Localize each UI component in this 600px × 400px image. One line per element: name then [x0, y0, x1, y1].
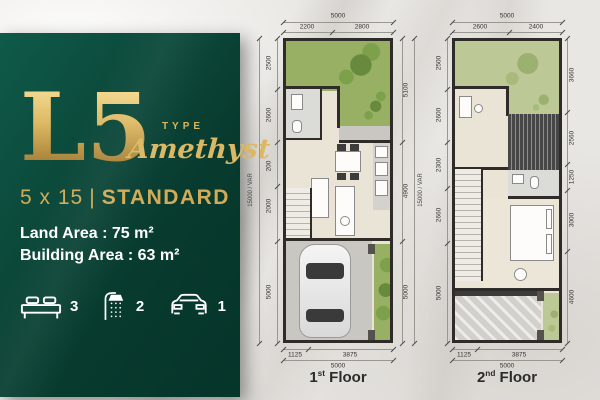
dim-tick [565, 341, 571, 347]
dim-label: 2400 [529, 24, 543, 31]
post [368, 244, 375, 254]
pillow [546, 234, 552, 254]
car [299, 244, 351, 338]
desk [459, 96, 472, 118]
land-area: Land Area : 75 m² [20, 225, 154, 243]
garden-below [455, 41, 559, 91]
dim-line [259, 38, 260, 343]
dim-line [414, 38, 415, 343]
dim-tick [560, 20, 566, 26]
dim-label: 1250 [569, 170, 576, 184]
dim-label: 5000 [266, 285, 273, 299]
grade-value: STANDARD [102, 186, 230, 209]
size-grade-line: 5 x 15|STANDARD [20, 186, 230, 210]
dim-label: 1125 [457, 352, 471, 359]
garden-strip2 [543, 293, 559, 340]
car-icon [168, 293, 210, 319]
dim-line [283, 32, 393, 33]
dim-line [452, 360, 562, 361]
roof-deck [508, 114, 559, 172]
floor1-plan [283, 38, 393, 343]
dim-tick [257, 341, 263, 347]
dim-label: 2500 [436, 56, 443, 70]
fridge [375, 180, 388, 196]
garden-strip [374, 244, 390, 340]
stairs2 [455, 169, 481, 281]
kitchen-sink [375, 146, 388, 158]
post [537, 291, 544, 301]
floor1-label: 1st Floor [283, 369, 393, 386]
dim-label: 2000 [266, 199, 273, 213]
type-label: TYPE [128, 121, 238, 132]
building-area: Building Area : 63 m² [20, 247, 179, 265]
outer-wall [283, 38, 286, 343]
outer-wall [559, 38, 562, 343]
sink-basin [340, 216, 350, 226]
dim-tick [412, 341, 418, 347]
dim-label: 5000 [331, 13, 345, 20]
dining-chair [350, 173, 359, 180]
dim-label: 3875 [512, 352, 526, 359]
shower-tray [291, 94, 303, 110]
bedroom-count: 3 [70, 298, 78, 315]
dim-label: 15000 / VAR [418, 173, 424, 207]
dim-label: 2600 [436, 108, 443, 122]
size-value: 5 x 15 [20, 186, 83, 209]
info-panel: L5 TYPE Amethyst 5 x 15|STANDARD Land Ar… [0, 33, 240, 397]
dim-label: 2660 [436, 208, 443, 222]
dim-label: 5000 [500, 13, 514, 20]
roof-beam [455, 291, 541, 296]
dim-tick [391, 347, 397, 353]
garden-below-side [508, 88, 559, 114]
dim-label: 2600 [266, 108, 273, 122]
wall [506, 86, 509, 116]
dim-label: 3000 [569, 213, 576, 227]
bathroom-count: 2 [136, 298, 144, 315]
divider: | [89, 186, 95, 209]
dim-label: 5100 [403, 83, 410, 97]
dim-label: 3875 [343, 352, 357, 359]
type-code: L5 [20, 81, 152, 175]
dim-tick [391, 20, 397, 26]
floor2-label: 2nd Floor [452, 369, 562, 386]
dim-tick [560, 30, 566, 36]
dim-line [283, 360, 393, 361]
dim-tick [275, 341, 281, 347]
dim-tick [560, 347, 566, 353]
dim-tick [391, 358, 397, 364]
dim-label: 15000 / VAR [248, 173, 254, 207]
feature-row: 3 2 [20, 285, 226, 327]
dim-line [277, 38, 278, 343]
post [537, 330, 544, 340]
outer-wall [283, 38, 393, 41]
dim-line [447, 38, 448, 343]
outer-wall [452, 38, 562, 41]
sofa [311, 178, 329, 218]
dim-label: 2500 [266, 56, 273, 70]
post [368, 330, 375, 340]
dim-label: 2560 [569, 131, 576, 145]
stairs [286, 188, 310, 238]
dim-label: 5000 [436, 286, 443, 300]
dim-label: 1125 [288, 352, 302, 359]
dim-label: 3660 [569, 68, 576, 82]
dim-label: 4900 [403, 184, 410, 198]
wall [337, 86, 340, 128]
pillow [546, 209, 552, 229]
island-counter [335, 186, 355, 236]
type-block: TYPE Amethyst [128, 121, 238, 165]
outer-wall [452, 38, 455, 343]
dim-label: 2300 [436, 158, 443, 172]
wall [320, 88, 322, 140]
outer-wall [390, 38, 393, 343]
stove [375, 162, 388, 176]
carport-feature: 1 [168, 293, 226, 319]
dim-tick [400, 341, 406, 347]
dining-chair [337, 144, 346, 151]
toilet2 [530, 176, 539, 189]
dim-tick [560, 358, 566, 364]
windshield [306, 263, 344, 279]
outer-wall [452, 340, 562, 343]
wall [286, 86, 339, 89]
floor2-plan [452, 38, 562, 343]
dim-line [283, 349, 393, 350]
type-name: Amethyst [127, 134, 239, 165]
dim-label: 2200 [300, 24, 314, 31]
chair [474, 104, 483, 113]
toilet [292, 120, 302, 133]
bedroom-feature: 3 [20, 291, 78, 321]
dim-line [452, 22, 562, 23]
dim-label: 2600 [473, 24, 487, 31]
bed-icon [20, 291, 62, 321]
bathroom-feature: 2 [102, 289, 144, 323]
dim-tick [391, 30, 397, 36]
shower-icon [102, 289, 128, 323]
dim-line [452, 349, 562, 350]
dim-label: 200 [266, 161, 273, 172]
washbasin [512, 174, 524, 184]
dining-table [335, 151, 361, 172]
garden-front [286, 41, 390, 91]
void-over-carport [455, 291, 541, 340]
brochure-canvas: L5 TYPE Amethyst 5 x 15|STANDARD Land Ar… [0, 0, 600, 400]
dim-label: 4600 [569, 290, 576, 304]
dim-label: 2800 [355, 24, 369, 31]
carport-count: 1 [218, 298, 226, 315]
dim-tick [445, 341, 451, 347]
wall [310, 188, 312, 238]
rear-window [306, 309, 344, 322]
side-table [514, 268, 527, 281]
wall [286, 138, 322, 140]
dining-chair [337, 173, 346, 180]
dining-chair [350, 144, 359, 151]
dim-label: 5000 [403, 285, 410, 299]
outer-wall [283, 340, 393, 343]
garden-side [339, 88, 390, 126]
